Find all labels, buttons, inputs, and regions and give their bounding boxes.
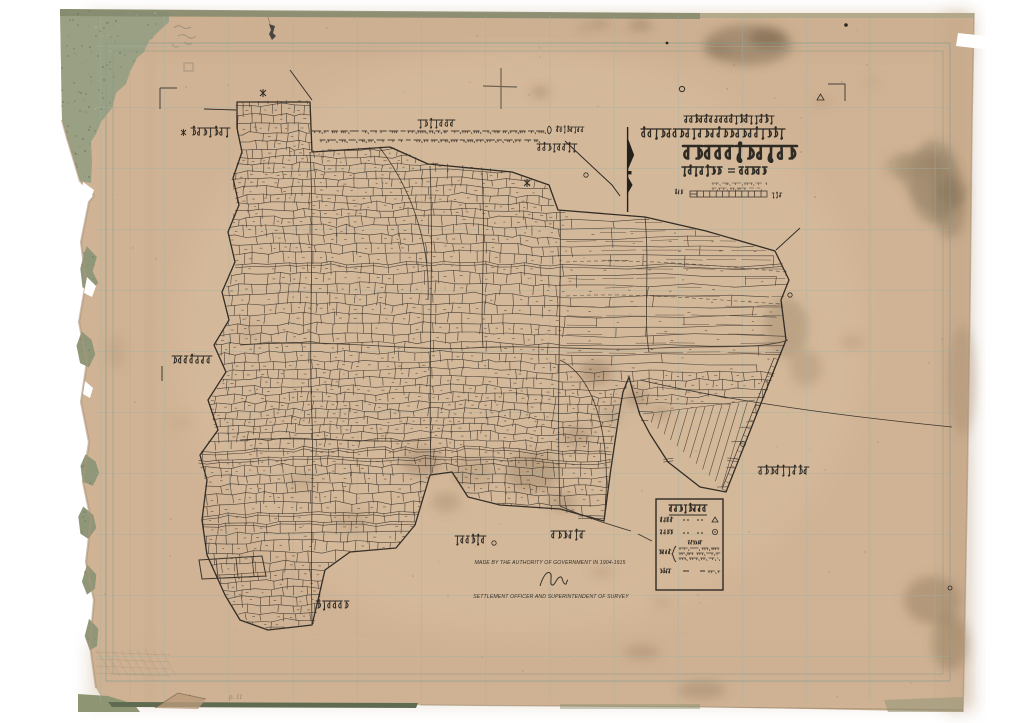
svg-text:MADE BY THE AUTHORITY OF GOVER: MADE BY THE AUTHORITY OF GOVERNMENT IN 1… — [474, 560, 625, 566]
svg-text:p. 11: p. 11 — [228, 693, 242, 701]
svg-text:SETTLEMENT OFFICER AND SUPERIN: SETTLEMENT OFFICER AND SUPERINTENDENT OF… — [473, 594, 629, 600]
